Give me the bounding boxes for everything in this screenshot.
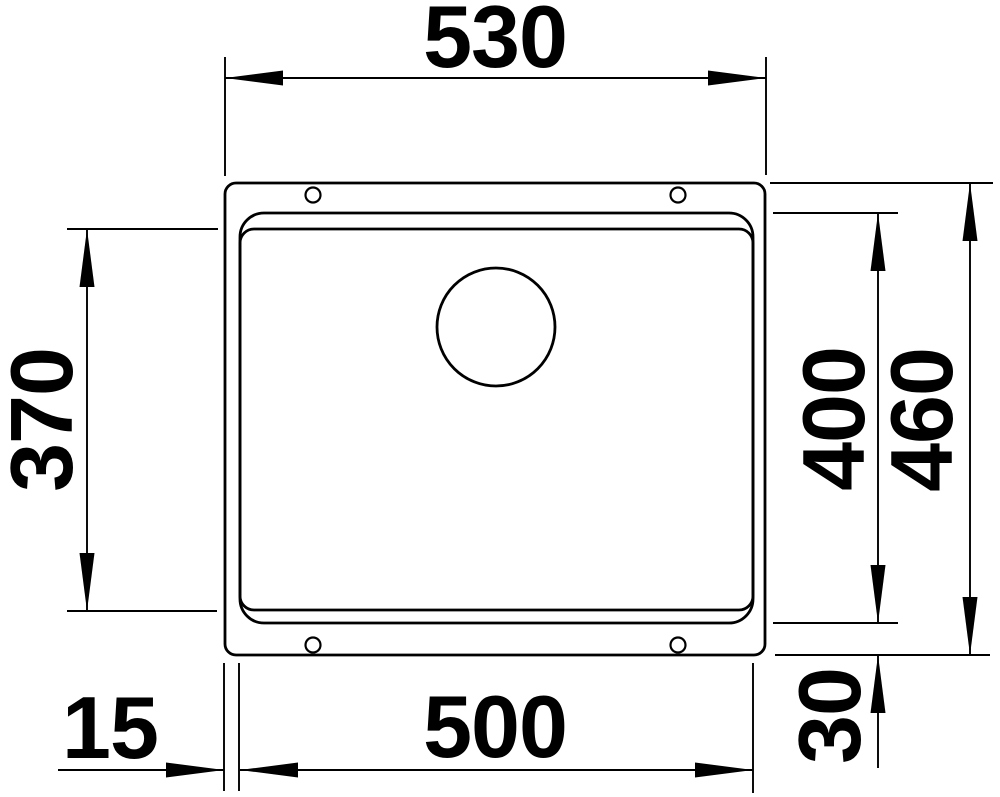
arrow-outer-width-right xyxy=(708,71,766,86)
dim-label-bowl-inner-height: 370 xyxy=(0,348,91,492)
arrow-outer-height-top xyxy=(963,183,978,241)
dim-label-outer-height: 460 xyxy=(872,348,971,492)
sink-dimension-drawing: 530 370 400 460 500 15 30 xyxy=(0,0,1000,797)
drawing-canvas: 530 370 400 460 500 15 30 xyxy=(0,0,1000,797)
flange-outer-edge xyxy=(225,183,765,655)
dim-label-bottom-offset: 30 xyxy=(780,668,879,764)
drain-hole xyxy=(437,268,555,386)
mounting-hole-bottom-left xyxy=(306,638,321,653)
arrow-side-offset-left xyxy=(166,763,224,778)
mounting-hole-bottom-right xyxy=(671,638,686,653)
arrow-bowl-height-bottom xyxy=(871,565,886,623)
dimension-labels: 530 370 400 460 500 15 30 xyxy=(0,0,971,777)
arrow-outer-height-bottom xyxy=(963,597,978,655)
arrow-outer-width-left xyxy=(225,71,283,86)
mounting-hole-top-right xyxy=(671,188,686,203)
dim-label-outer-width: 530 xyxy=(423,0,567,86)
sink-outline xyxy=(225,183,765,655)
arrow-bowl-inner-height-top xyxy=(80,229,95,287)
dim-label-bowl-width: 500 xyxy=(423,677,567,776)
dim-label-side-offset: 15 xyxy=(62,678,158,777)
arrow-bowl-width-right xyxy=(695,763,753,778)
dim-label-bowl-height: 400 xyxy=(784,347,883,491)
arrow-bowl-height-top xyxy=(871,213,886,271)
arrow-bowl-inner-height-bottom xyxy=(80,553,95,611)
mounting-hole-top-left xyxy=(306,188,321,203)
bowl-rim-outer xyxy=(240,213,753,623)
bowl-rim-inner xyxy=(240,229,753,610)
arrow-bowl-width-left xyxy=(240,763,298,778)
